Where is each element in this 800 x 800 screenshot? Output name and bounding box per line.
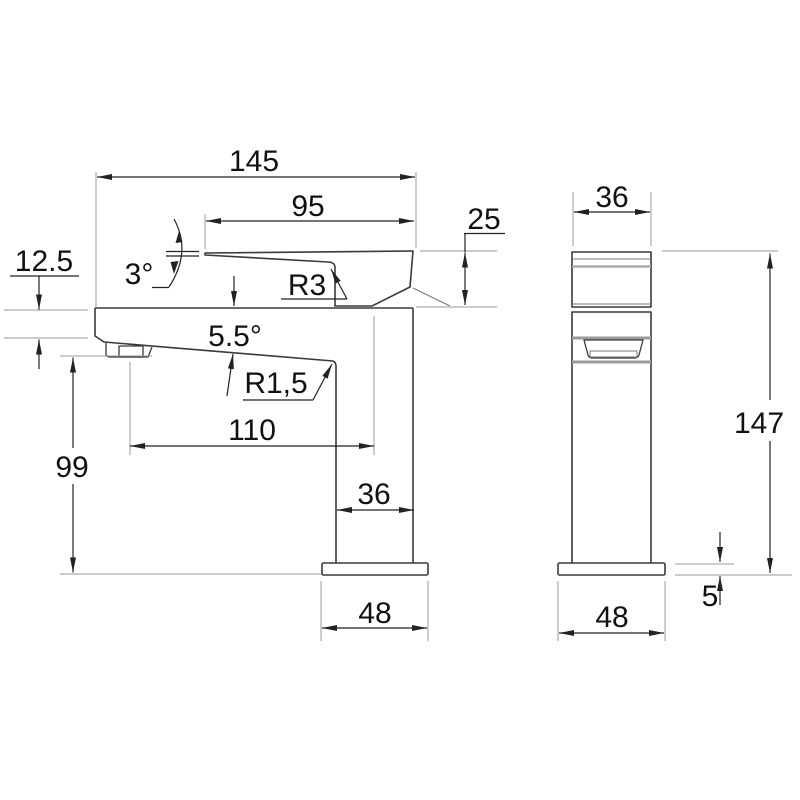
dim-label-top-section-height: 25 bbox=[467, 203, 500, 236]
dim-label-body-depth: 36 bbox=[357, 478, 390, 511]
dim-label-overall-length: 145 bbox=[229, 145, 279, 178]
dim-label-outlet-height: 99 bbox=[55, 451, 88, 484]
dim-label-spout-angle: 5.5° bbox=[208, 320, 262, 353]
canvas-background bbox=[0, 0, 800, 800]
dim-label-spout-radius: R1,5 bbox=[244, 367, 307, 400]
dim-label-base-width-front: 48 bbox=[595, 601, 628, 634]
dim-label-spout-top-length: 95 bbox=[291, 190, 324, 223]
dim-label-overall-height: 147 bbox=[734, 407, 784, 440]
dim-label-top-radius: R3 bbox=[288, 269, 326, 302]
dim-label-outlet-projection: 110 bbox=[228, 414, 276, 447]
technical-drawing-page: 145 95 25 12.5 3° R3 5.5° R1,5 110 99 36… bbox=[0, 0, 800, 800]
dim-label-base-thickness: 5 bbox=[702, 580, 719, 613]
dim-label-base-depth: 48 bbox=[358, 597, 391, 630]
dim-label-top-angle: 3° bbox=[125, 258, 154, 291]
dim-label-body-width-front: 36 bbox=[595, 181, 628, 214]
faucet-dimension-drawing: 145 95 25 12.5 3° R3 5.5° R1,5 110 99 36… bbox=[0, 0, 800, 800]
dim-label-spout-tip-height: 12.5 bbox=[15, 245, 73, 278]
